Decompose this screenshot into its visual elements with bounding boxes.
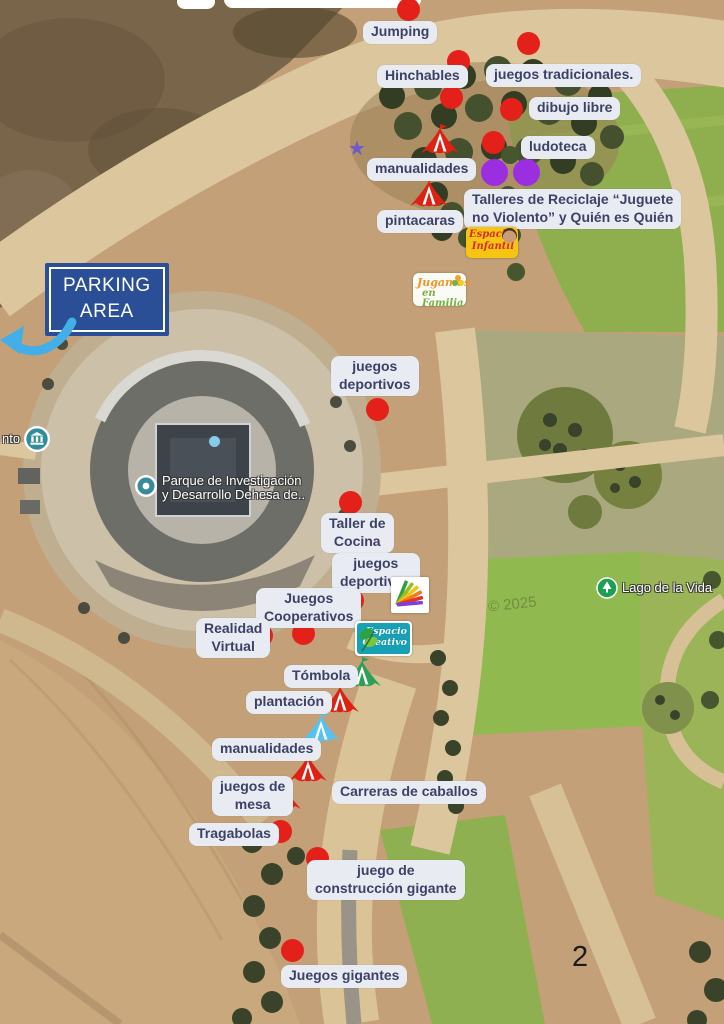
poi-label-edge-partial: nto	[2, 426, 50, 452]
red-dot-marker-juegos-gigantes	[281, 939, 304, 962]
activity-label-realidad-virtual: RealidadVirtual	[196, 618, 270, 658]
activity-label-manualidades-1: manualidades	[367, 158, 476, 181]
activity-label-jumping: Jumping	[363, 21, 437, 44]
activity-label-talleres-reciclaje: Talleres de Reciclaje “Jugueteno Violent…	[464, 189, 681, 229]
red-tent-icon-hinchables	[420, 124, 460, 158]
red-dot-marker-juegos-deportivos-1	[366, 398, 389, 421]
activity-label-juegos-gigantes: Juegos gigantes	[281, 965, 407, 988]
flower-icon	[452, 275, 464, 287]
activity-label-pintacaras: pintacaras	[377, 210, 463, 233]
activity-label-tombola: Tómbola	[284, 665, 358, 688]
red-dot-marker-juegos-tradicionales	[517, 32, 540, 55]
purple-star-marker: ★	[348, 139, 366, 159]
poi-park-line-1: Parque de Investigación	[162, 474, 305, 488]
activity-label-juego-construccion-gigante: juego deconstrucción gigante	[307, 860, 465, 900]
red-dot-marker-dibujo-libre	[500, 98, 523, 121]
museum-icon	[24, 426, 50, 452]
espacio-infantil-avatar	[502, 228, 517, 243]
activity-label-dibujo-libre: dibujo libre	[529, 97, 620, 120]
activity-label-juegos-tradicionales: juegos tradicionales.	[486, 64, 641, 87]
poi-edge-text: nto	[2, 432, 20, 446]
purple-dot-marker-1	[481, 159, 508, 186]
activity-label-tragabolas: Tragabolas	[189, 823, 279, 846]
activity-label-juegos-cooperativos: JuegosCooperativos	[256, 588, 361, 628]
colored-pencils-icon	[391, 577, 429, 613]
activity-label-plantacion: plantación	[246, 691, 332, 714]
parking-line-1: PARKING	[63, 273, 151, 299]
event-program-map-page: ★ PARKING AREA Parque de Investigación y…	[0, 0, 724, 1024]
poi-label-park: Parque de Investigación y Desarrollo Deh…	[134, 474, 305, 503]
park-tree-icon	[596, 577, 618, 599]
poi-park-line-2: y Desarrollo Dehesa de..	[162, 488, 305, 502]
red-tent-icon-pintacaras	[409, 177, 449, 211]
activity-label-taller-de-cocina: Taller deCocina	[321, 513, 394, 553]
poi-label-lake: Lago de la Vida	[596, 577, 712, 599]
page-number: 2	[572, 941, 588, 974]
red-dot-marker-taller-cocina	[339, 491, 362, 514]
red-dot-marker-ludoteca	[482, 131, 505, 154]
blue-arrow-icon-parking	[0, 312, 82, 372]
poi-circle-icon	[134, 474, 158, 498]
jugamos-en-familia-logo: Jugamos en Familia	[413, 273, 466, 306]
leaves-icon	[358, 625, 380, 653]
espacio-infantil-logo: Espacio Infantil	[466, 227, 518, 258]
espacio-creativo-logo: Espacio Creativo	[355, 621, 412, 656]
blue-dot-marker-building	[209, 436, 220, 447]
purple-dot-marker-2	[513, 159, 540, 186]
activity-label-juegos-deportivos-1: juegosdeportivos	[331, 356, 419, 396]
poi-lake-text: Lago de la Vida	[622, 581, 712, 595]
activity-label-hinchables: Hinchables	[377, 65, 468, 88]
activity-label-carreras-de-caballos: Carreras de caballos	[332, 781, 486, 804]
top-edge-bubble-small	[177, 0, 215, 9]
top-edge-bubble-large	[224, 0, 421, 8]
activity-label-manualidades-2: manualidades	[212, 738, 321, 761]
activity-label-juegos-de-mesa: juegos demesa	[212, 776, 293, 816]
activity-label-ludoteca: ludoteca	[521, 136, 595, 159]
red-dot-marker-hinchables-2	[440, 86, 463, 109]
